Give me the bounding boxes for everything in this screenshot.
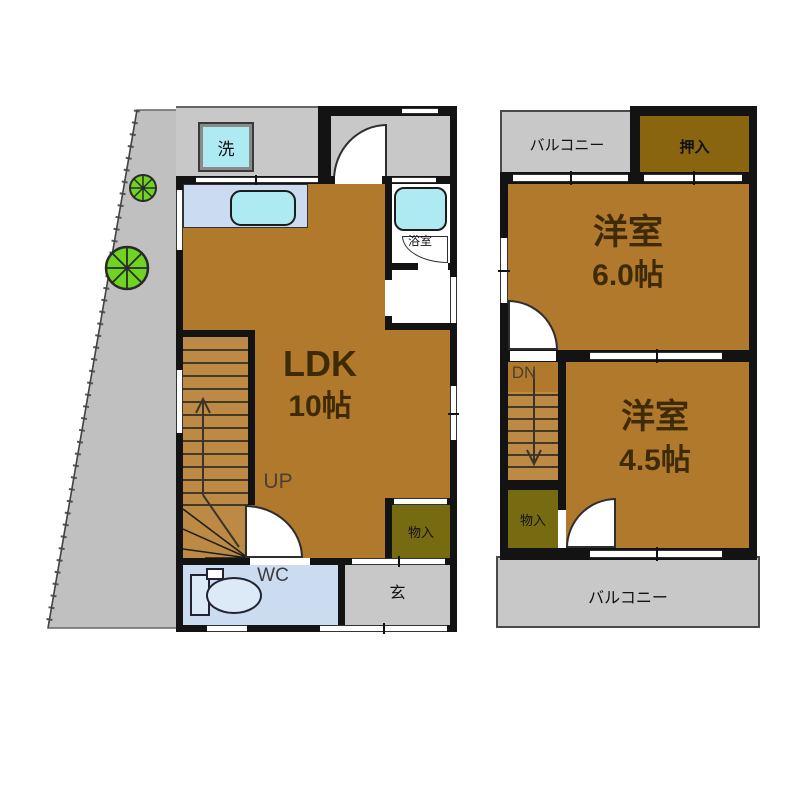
entrance-label: 玄 [345,565,450,617]
bathroom-label: 浴室 [392,232,448,248]
window [450,277,457,323]
kitchen-sink [230,190,296,226]
room45-name-label: 洋室 [590,392,720,434]
storage-2f: 物入 [508,490,558,548]
wall [500,172,508,560]
door-opening [385,280,392,316]
closet-oshiire: 押入 [640,116,749,176]
floorplan-canvas: 洗 浴室 LDK 10帖 UP 物入 WC 玄 [0,0,800,800]
window-tick [570,171,572,185]
toilet-bowl [206,577,262,614]
window-tick [255,175,257,185]
storage-2f-label: 物入 [508,490,558,548]
window [176,370,183,433]
laundry-label: 洗 [203,127,249,167]
window [402,108,438,114]
room45-size-label: 4.5帖 [590,437,720,477]
wall [385,498,392,558]
window [207,625,247,632]
land-polygon [48,110,180,628]
closet-label: 押入 [640,116,749,176]
door-opening [250,558,310,565]
land-area [40,100,190,640]
storage-1f-label: 物入 [392,505,450,558]
sliding-door [394,498,447,505]
balcony-top-label: バルコニー [502,112,632,176]
balcony-bottom: バルコニー [496,556,760,628]
ldk-size-label: 10帖 [255,384,385,422]
window-tick [656,547,658,561]
wall [450,106,457,632]
wall [385,323,457,330]
staircase-1f [183,337,248,558]
ldk-name-label: LDK [255,344,385,384]
storage-1f: 物入 [392,505,450,558]
tree-icon [129,174,157,202]
window [390,177,436,183]
door-opening [510,351,556,361]
balcony-bottom-label: バルコニー [498,562,758,630]
wall [630,106,757,116]
door-opening [335,176,382,184]
door-opening [418,263,448,270]
washroom [392,270,450,323]
stairs-down-label: DN [502,362,546,384]
room6-size-label: 6.0帖 [563,252,693,292]
tree-icon [105,246,149,290]
wall [338,558,345,625]
window [176,190,183,250]
bathtub [394,187,447,231]
room6-name-label: 洋室 [563,208,693,250]
wall [248,330,255,505]
wall [318,106,331,180]
window-tick [383,623,385,634]
stairs-up-label: UP [250,468,306,496]
window [196,177,318,183]
window-tick [398,556,400,567]
window-tick [693,171,695,185]
window-tick [656,349,658,363]
window-tick [448,413,459,415]
window-tick [498,270,510,272]
wall [500,480,566,490]
laundry-machine: 洗 [200,124,252,170]
balcony-top: バルコニー [500,110,634,178]
wall [176,330,255,337]
